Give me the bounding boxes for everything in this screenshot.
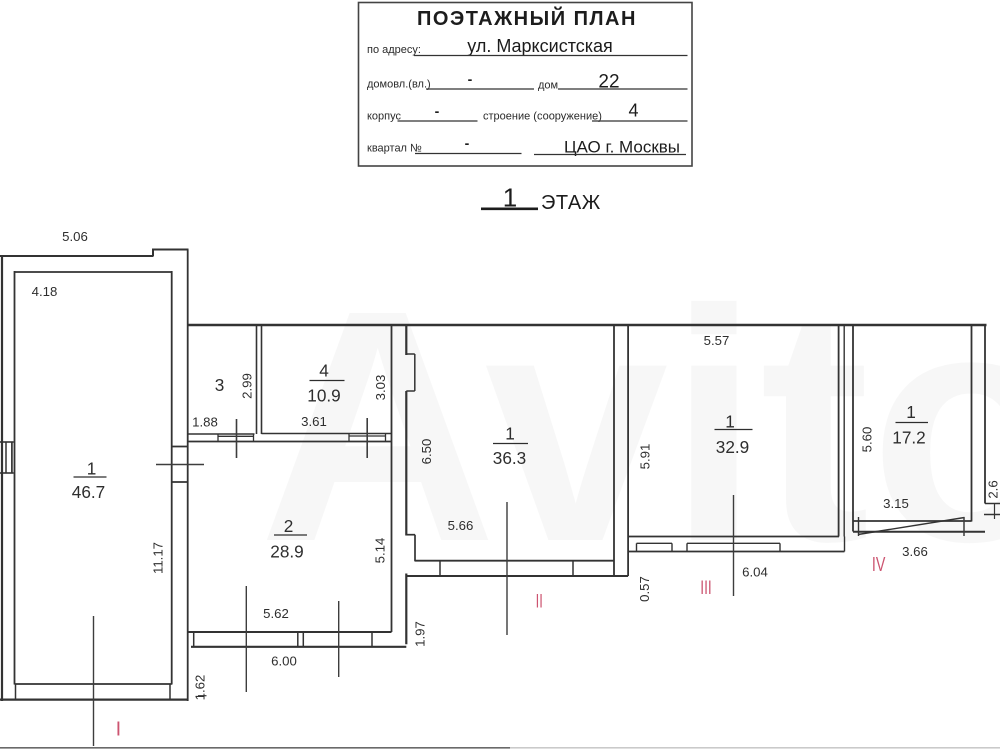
svg-text:5.66: 5.66	[448, 518, 474, 533]
svg-text:1.97: 1.97	[413, 621, 428, 647]
svg-text:1: 1	[725, 412, 735, 432]
svg-text:3.66: 3.66	[902, 544, 928, 559]
svg-text:6.00: 6.00	[271, 654, 297, 669]
svg-text:46.7: 46.7	[72, 482, 105, 502]
svg-text:III: III	[700, 578, 712, 599]
svg-text:32.9: 32.9	[716, 437, 749, 457]
svg-text:ЭТАЖ: ЭТАЖ	[541, 192, 601, 214]
svg-text:II: II	[536, 592, 543, 613]
svg-text:4: 4	[628, 101, 638, 121]
svg-text:Avito: Avito	[259, 241, 1000, 610]
svg-text:I: I	[116, 719, 122, 741]
svg-text:1: 1	[87, 459, 97, 479]
svg-text:-: -	[468, 71, 473, 87]
svg-text:-: -	[435, 103, 440, 119]
svg-text:6.50: 6.50	[419, 439, 434, 465]
svg-text:10.9: 10.9	[307, 386, 340, 406]
svg-text:5.06: 5.06	[62, 229, 88, 244]
svg-text:5.14: 5.14	[373, 538, 388, 564]
svg-text:квартал №: квартал №	[367, 143, 422, 155]
svg-text:3: 3	[215, 375, 225, 395]
svg-text:ПОЭТАЖНЫЙ ПЛАН: ПОЭТАЖНЫЙ ПЛАН	[417, 6, 637, 30]
svg-text:дом: дом	[538, 80, 558, 92]
svg-text:17.2: 17.2	[892, 428, 925, 448]
svg-text:5.57: 5.57	[704, 333, 730, 348]
svg-text:0.57: 0.57	[637, 576, 652, 602]
svg-text:4.18: 4.18	[32, 284, 58, 299]
svg-text:5.62: 5.62	[263, 606, 289, 621]
svg-text:5.91: 5.91	[638, 444, 653, 470]
svg-text:2: 2	[284, 516, 294, 536]
svg-text:6.04: 6.04	[742, 565, 768, 580]
svg-text:1.62: 1.62	[193, 675, 208, 701]
svg-text:IV: IV	[872, 554, 886, 576]
svg-text:ул. Марксистская: ул. Марксистская	[467, 36, 613, 56]
svg-text:домовл.(вл.): домовл.(вл.)	[367, 79, 431, 91]
svg-text:-: -	[465, 135, 470, 151]
svg-text:1.88: 1.88	[192, 415, 218, 430]
svg-text:5.60: 5.60	[860, 427, 875, 453]
svg-text:11.17: 11.17	[151, 542, 166, 574]
svg-text:3.61: 3.61	[301, 414, 327, 429]
svg-text:28.9: 28.9	[270, 542, 303, 562]
svg-text:строение (сооружение): строение (сооружение)	[483, 111, 602, 123]
svg-text:1: 1	[505, 424, 515, 444]
svg-text:ЦАО г. Москвы: ЦАО г. Москвы	[564, 138, 680, 157]
svg-text:по адресу:: по адресу:	[367, 44, 421, 56]
svg-text:4: 4	[319, 361, 329, 381]
svg-text:корпус: корпус	[367, 111, 402, 123]
svg-text:1: 1	[906, 402, 916, 422]
svg-text:2.99: 2.99	[240, 373, 255, 399]
svg-text:2.6: 2.6	[986, 480, 1000, 498]
svg-text:3.03: 3.03	[373, 375, 388, 401]
svg-text:3.15: 3.15	[883, 496, 909, 511]
svg-text:36.3: 36.3	[493, 448, 526, 468]
